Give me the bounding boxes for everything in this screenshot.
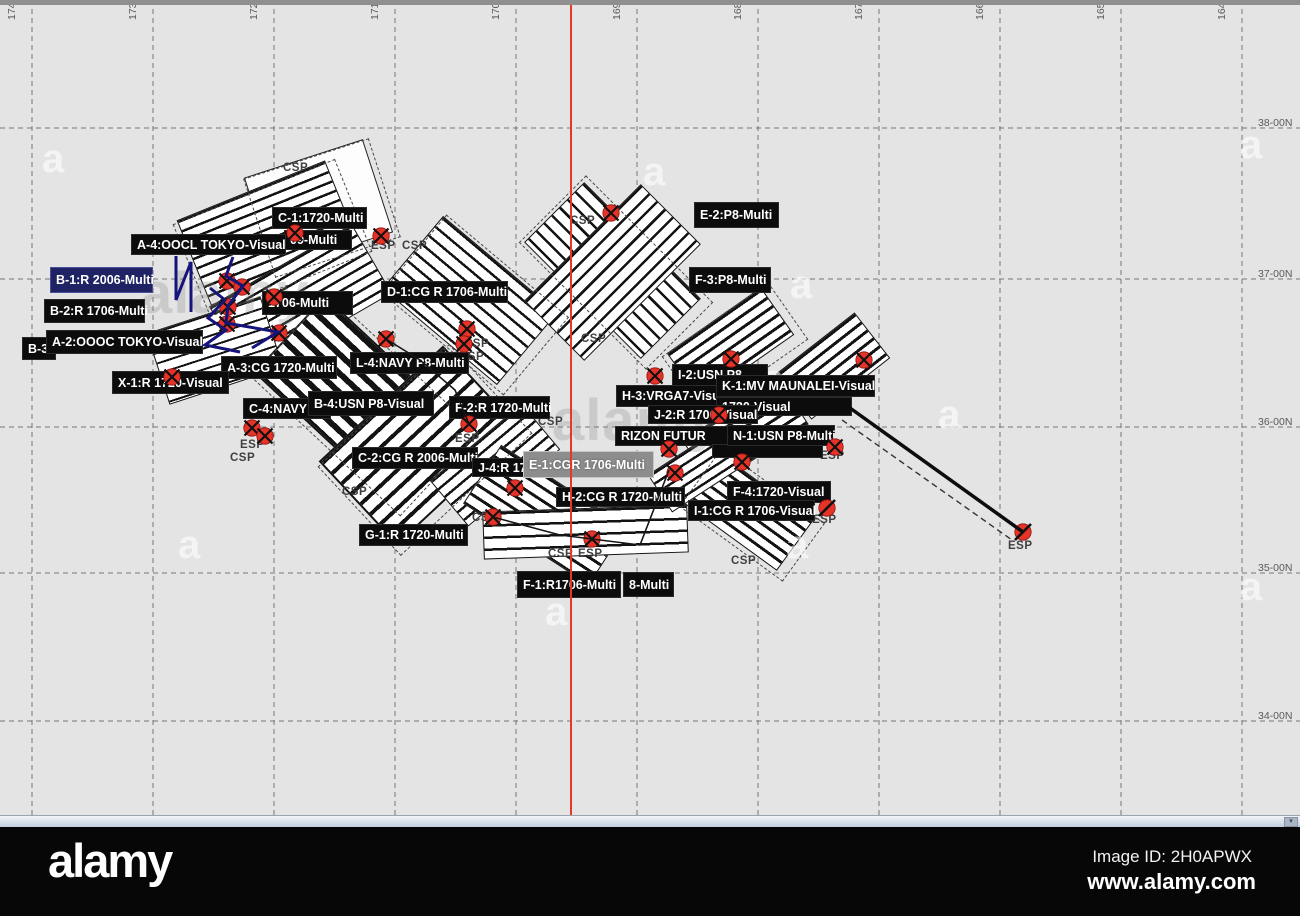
latitude-label: 34-00N	[1258, 710, 1292, 722]
search-area-label[interactable]: B-1:R 2006-Multi	[50, 267, 153, 293]
horizontal-scrollbar[interactable]: ▾	[0, 815, 1300, 827]
search-area-label[interactable]: G-1:R 1720-Multi	[359, 524, 468, 546]
csp-point-label: CSP	[402, 240, 427, 252]
search-area-label[interactable]: H-2:CG R 1720-Multi	[556, 487, 685, 507]
alamy-watermark-a-icon: a	[643, 150, 665, 195]
esp-marker-icon[interactable]	[1012, 521, 1034, 548]
latitude-label: 35-00N	[1258, 562, 1292, 574]
waypoint-marker-icon[interactable]	[720, 348, 742, 375]
map-canvas[interactable]: 174-00W173-00W172-00W171-00W170-00W169-0…	[0, 5, 1300, 815]
waypoint-marker-icon[interactable]	[254, 425, 276, 452]
csp-point-label: CSP	[230, 452, 255, 464]
alamy-watermark-a-icon: a	[790, 263, 812, 308]
latitude-label: 37-00N	[1258, 268, 1292, 280]
waypoint-marker-icon[interactable]	[581, 528, 603, 555]
waypoint-marker-icon[interactable]	[161, 366, 183, 393]
waypoint-marker-icon[interactable]	[824, 436, 846, 463]
longitude-label: 173-00W	[127, 5, 139, 20]
alamy-logo: alamy	[48, 833, 171, 888]
alamy-watermark-a-icon: a	[42, 137, 64, 182]
longitude-label: 164-00W	[1216, 5, 1228, 20]
alamy-watermark-a-icon: a	[1240, 123, 1262, 168]
csp-point-label: CSP	[581, 333, 606, 345]
alamy-watermark-a-icon: a	[1240, 565, 1262, 610]
search-area-label[interactable]: L-4:NAVY P8-Multi	[350, 352, 469, 374]
longitude-label: 165-00W	[1095, 5, 1107, 20]
waypoint-marker-icon[interactable]	[370, 225, 392, 252]
csp-point-label: CSP	[283, 162, 308, 174]
search-area-label[interactable]: C-2:CG R 2006-Multi	[352, 447, 478, 469]
longitude-label: 170-00W	[490, 5, 502, 20]
csp-point-label: CSP	[731, 555, 756, 567]
csp-point-label: CSP	[570, 215, 595, 227]
longitude-label: 171-00W	[369, 5, 381, 20]
search-area-label[interactable]: 8-Multi	[623, 572, 674, 597]
search-area-label[interactable]: F-1:R1706-Multi	[517, 571, 621, 598]
waypoint-marker-icon[interactable]	[458, 413, 480, 440]
search-area-label[interactable]: A-2:OOOC TOKYO-Visual	[46, 330, 203, 354]
search-area-label[interactable]: J-2:R 1706-Visual	[648, 405, 758, 424]
search-area-label[interactable]: B-2:R 1706-Multi	[44, 299, 145, 323]
sar-planning-app-window: 174-00W173-00W172-00W171-00W170-00W169-0…	[0, 0, 1300, 916]
waypoint-marker-icon[interactable]	[853, 349, 875, 376]
latitude-label: 38-00N	[1258, 117, 1292, 129]
waypoint-marker-icon[interactable]	[664, 462, 686, 489]
latitude-label: 36-00N	[1258, 416, 1292, 428]
waypoint-marker-icon[interactable]	[504, 477, 526, 504]
waypoint-marker-icon[interactable]	[375, 328, 397, 355]
longitude-label: 166-00W	[974, 5, 986, 20]
image-id-text: Image ID: 2H0APWX	[1092, 847, 1252, 867]
scrollbar-button[interactable]: ▾	[1284, 817, 1298, 827]
longitude-label: 172-00W	[248, 5, 260, 20]
csp-point-label: CSP	[342, 486, 367, 498]
waypoint-marker-icon[interactable]	[644, 365, 666, 392]
waypoint-marker-icon[interactable]	[263, 286, 285, 313]
search-area-label[interactable]: K-1:MV MAUNALEI-Visual	[716, 375, 875, 397]
alamy-watermark-a-icon: a	[178, 523, 200, 568]
window-top-edge	[0, 0, 1300, 5]
alamy-url-text: www.alamy.com	[1087, 869, 1256, 895]
waypoint-marker-icon[interactable]	[284, 222, 306, 249]
search-area-label[interactable]: A-4:OOCL TOKYO-Visual	[131, 234, 286, 255]
waypoint-marker-icon[interactable]	[731, 451, 753, 478]
longitude-label: 169-00W	[611, 5, 623, 20]
search-area-label[interactable]: I-1:CG R 1706-Visual	[688, 500, 815, 521]
longitude-label: 174-00W	[6, 5, 18, 20]
alamy-watermark-a-icon: a	[938, 393, 960, 438]
search-area-label[interactable]: F-3:P8-Multi	[689, 267, 771, 293]
search-area-label[interactable]: E-2:P8-Multi	[694, 202, 779, 228]
waypoint-marker-icon[interactable]	[482, 506, 504, 533]
search-area-label[interactable]: A-3:CG 1720-Multi	[221, 356, 337, 379]
longitude-label: 168-00W	[732, 5, 744, 20]
longitude-label: 167-00W	[853, 5, 865, 20]
watermark-footer-bar: alamy Image ID: 2H0APWX www.alamy.com	[0, 827, 1300, 916]
search-area-label[interactable]: B-4:USN P8-Visual	[308, 391, 434, 416]
datum-reference-line	[570, 5, 572, 815]
waypoint-marker-icon[interactable]	[268, 322, 290, 349]
waypoint-marker-icon[interactable]	[216, 313, 238, 340]
waypoint-marker-icon[interactable]	[708, 404, 730, 431]
waypoint-marker-icon[interactable]	[600, 202, 622, 229]
waypoint-marker-icon[interactable]	[453, 333, 475, 360]
esp-marker-icon[interactable]	[816, 497, 838, 524]
search-area-label[interactable]: N-1:USN P8-Multi	[727, 425, 835, 446]
waypoint-marker-icon[interactable]	[658, 438, 680, 465]
search-area-label[interactable]: E-1:CGR 1706-Multi	[523, 451, 654, 478]
search-area-label[interactable]: D-1:CG R 1706-Multi	[381, 281, 508, 303]
alamy-watermark-a-icon: a	[786, 523, 808, 568]
search-area-label[interactable]	[712, 444, 823, 458]
